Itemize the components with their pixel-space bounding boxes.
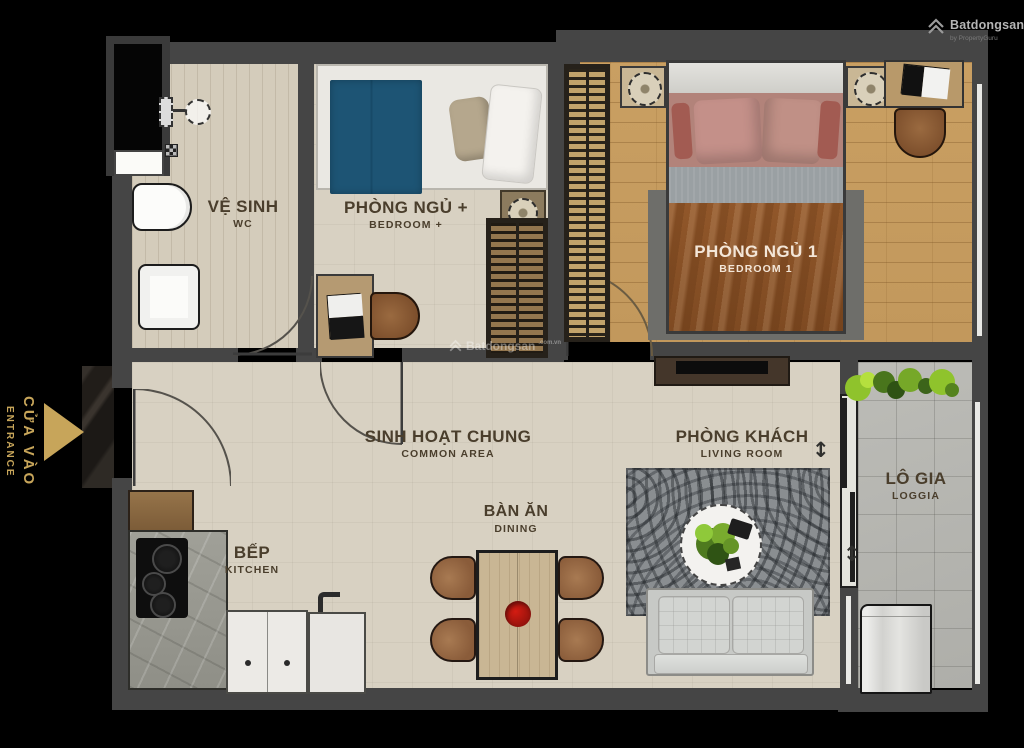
room-label-common-area-en: COMMON AREA [358,448,538,462]
pillow-accent-left [671,102,693,159]
room-label-kitchen-vi: BẾP [192,542,312,564]
washing-machine-icon [860,604,932,694]
dining-chair [558,556,604,600]
sofa-front-band [654,654,808,674]
room-label-bedroom-plus-en: BEDROOM + [330,219,482,233]
room-label-kitchen-en: KITCHEN [192,564,312,578]
laptop-base [329,316,364,340]
room-label-kitchen: BẾP KITCHEN [192,542,312,578]
door-arc-bathroom [233,276,313,356]
cooktop-icon [136,538,188,618]
dining-chair [430,618,476,662]
loggia-window-right [975,402,980,684]
bed-small-blanket-blue [330,80,422,194]
door-arc-entrance [133,389,231,487]
cabinet-knob-left [245,660,251,666]
entrance-arrow-icon [44,403,84,461]
dimension-arrow-loggia: ↕ [843,542,861,566]
logo-brand: Batdongsan [950,18,1024,32]
watermark-brand: Batdongsan [466,339,535,353]
sink-vanity-icon [138,264,200,330]
wall-bedrooms-divider [548,42,564,360]
desk-chair-bedroom-1 [894,108,946,158]
room-label-wc: VỆ SINH WC [173,196,313,232]
laptop-lid [328,294,363,318]
room-label-dining-en: DINING [456,523,576,537]
logo-byline: by PropertyGuru [950,35,1024,42]
bed-small-pillow-white [481,84,543,185]
sliding-door-panel-lower [850,492,855,582]
batdongsan-chevron-icon [926,16,946,36]
coffee-table [680,504,762,586]
floor-drain-icon [165,144,178,157]
burner-top [152,544,182,574]
wall-under-bath [112,348,238,362]
sofa [646,588,814,676]
room-label-bedroom-1-en: BEDROOM 1 [669,263,843,277]
sofa-cushion-right [732,596,804,654]
room-label-bedroom-1-vi: PHÒNG NGỦ 1 [669,241,843,263]
lamp-icon-right [854,72,888,106]
lamp-icon-left [628,72,662,106]
wall-top-left [106,42,580,64]
wardrobe-column [491,223,516,353]
room-label-bedroom-plus: PHÒNG NGỦ + BEDROOM + [330,197,482,233]
laptop-lid [921,67,950,100]
room-label-common-area: SINH HOẠT CHUNG COMMON AREA [358,426,538,462]
kitchen-sink-cabinet [308,612,366,694]
room-label-wc-vi: VỆ SINH [173,196,313,218]
faucet-icon [318,592,340,612]
bedroom1-window [977,84,982,336]
room-label-living-room: PHÒNG KHÁCH LIVING ROOM [652,426,832,462]
pillow-accent-right [817,100,841,159]
wardrobe-bedroom-1 [564,64,610,342]
shower-bracket-icon [159,97,173,127]
room-label-bedroom-plus-vi: PHÒNG NGỦ + [330,197,482,219]
wall-top-right [556,30,988,62]
room-label-loggia: LÔ GIA LOGGIA [860,468,972,504]
entrance-label-en: ENTRANCE [4,392,15,492]
dining-chair [558,618,604,662]
room-label-dining-vi: BÀN ĂN [456,502,576,523]
plant-icon [682,506,764,588]
cabinet-door-divider [267,612,268,692]
shower-head-icon [185,99,211,125]
room-label-dining: BÀN ĂN DINING [456,502,576,536]
laptop-icon-bedroom-1 [901,64,950,99]
wall-bottom [112,688,864,710]
tv-cabinet [654,356,790,386]
wardrobe-column [569,69,586,337]
burner-bottom [150,592,176,618]
watermark-tld: .com.vn [538,340,561,346]
planter-plants-icon [844,360,966,406]
pillow-pink-right [761,98,822,165]
entrance-landing [82,366,114,488]
wardrobe-bedroom-plus [486,218,548,358]
nightstand-left [620,66,666,108]
bed-large: PHÒNG NGỦ 1 BEDROOM 1 [666,60,846,334]
laptop-icon-desk-small [327,293,364,339]
kitchen-base-cabinet [226,610,308,694]
cabinet-knob-right [284,660,290,666]
sliding-door-panel-upper [842,398,847,488]
pillow-pink-left [693,97,762,164]
floorplan-canvas: PHÒNG NGỦ 1 BEDROOM 1 ↕ ↕ [0,0,1024,748]
center-watermark: Batdongsan .com.vn [448,338,561,353]
logo-text-block: Batdongsan.com.vn by PropertyGuru [950,16,1024,42]
room-label-bedroom-1: PHÒNG NGỦ 1 BEDROOM 1 [669,241,843,277]
washer-top-line [862,616,930,617]
watermark-chevron-icon [448,338,463,353]
sofa-cushion-left [658,596,730,654]
bed-large-gray-band [669,167,843,205]
wardrobe-column [519,223,544,353]
dining-chair [430,556,476,600]
flower-centerpiece-icon [505,601,531,627]
wardrobe-column [589,69,606,337]
room-label-loggia-vi: LÔ GIA [860,468,972,490]
room-label-living-room-en: LIVING ROOM [652,448,832,462]
kitchen-upper-cabinet [128,490,194,532]
logo-row: Batdongsan.com.vn [950,16,1024,34]
bed-large-headboard [669,63,843,93]
loggia-window-lower [846,596,851,684]
shower-tray [114,150,164,176]
desk-chair-small [370,292,420,340]
tv-icon [676,361,768,374]
room-label-wc-en: WC [173,218,313,232]
shaft-void [114,44,162,150]
room-label-common-area-vi: SINH HOẠT CHUNG [358,426,538,448]
room-label-loggia-en: LOGGIA [860,490,972,504]
entrance-label-vi: CỬA VÀO [20,380,37,504]
room-label-living-room-vi: PHÒNG KHÁCH [652,426,832,448]
site-logo: Batdongsan.com.vn by PropertyGuru [926,16,1024,42]
